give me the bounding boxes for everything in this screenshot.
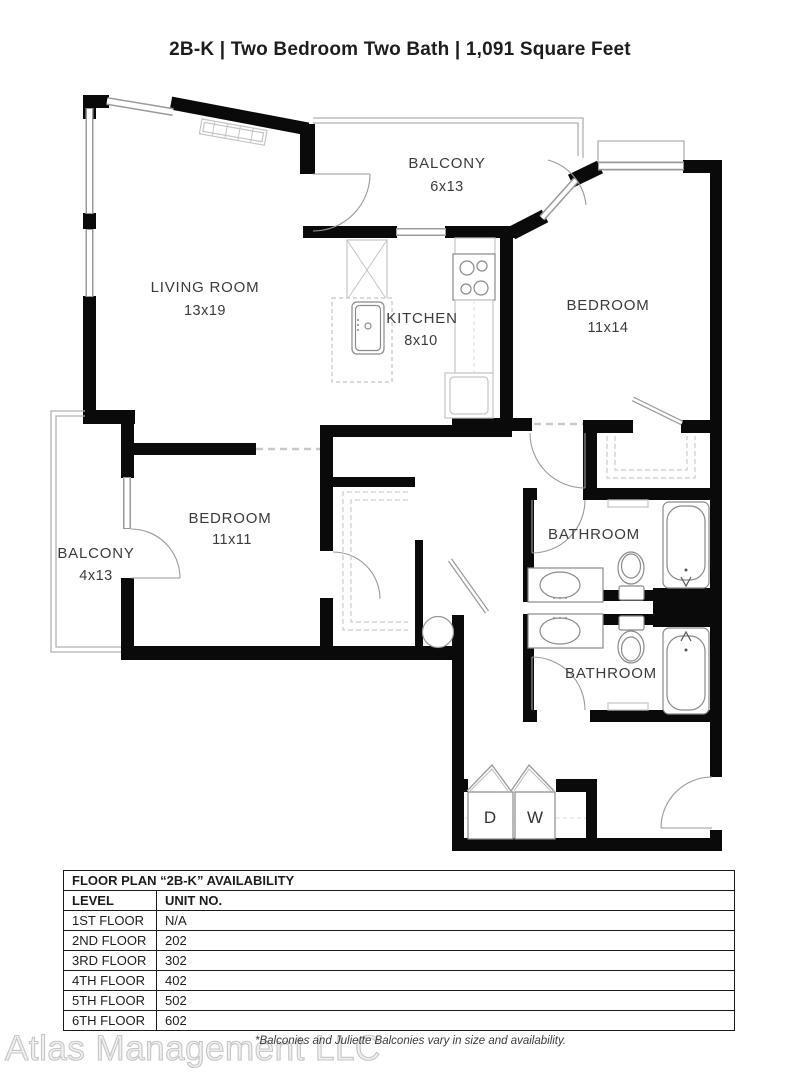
laundry-closet: D W xyxy=(465,765,586,839)
room-dims-balcony-top: 6x13 xyxy=(430,179,463,195)
balcony-door-leaf xyxy=(542,180,576,218)
stove xyxy=(453,254,495,300)
table-row: 5TH FLOOR 502 xyxy=(64,991,735,1011)
table-header-row: LEVEL UNIT NO. xyxy=(64,891,735,911)
room-dims-bedroom-1: 11x14 xyxy=(588,320,629,336)
room-dims-living-room: 13x19 xyxy=(184,303,226,319)
sink-vanity xyxy=(528,568,603,602)
room-dims-balcony-left: 4x13 xyxy=(79,568,112,584)
closet-door-leaf xyxy=(450,560,487,612)
table-title-row: FLOOR PLAN “2B-K” AVAILABILITY xyxy=(64,871,735,891)
entry-door-arc xyxy=(661,777,712,828)
table-row: 1ST FLOOR N/A xyxy=(64,911,735,931)
room-label-balcony-left: BALCONY xyxy=(57,545,134,562)
balcony-disclaimer-note: *Balconies and Juliette Balconies vary i… xyxy=(255,1035,566,1047)
unit-cell: 202 xyxy=(157,931,735,951)
room-label-kitchen: KITCHEN xyxy=(386,310,457,327)
unit-cell: 302 xyxy=(157,951,735,971)
washer-label: W xyxy=(527,808,543,827)
kitchen-fixtures xyxy=(332,238,495,418)
door-arc xyxy=(313,174,370,231)
table-row: 4TH FLOOR 402 xyxy=(64,971,735,991)
room-dims-kitchen: 8x10 xyxy=(404,333,437,349)
corner-cabinet xyxy=(347,240,387,300)
door-arc xyxy=(530,433,585,488)
room-label-bathroom-2: BATHROOM xyxy=(565,665,657,682)
room-label-bathroom-1: BATHROOM xyxy=(548,526,640,543)
table-title: FLOOR PLAN “2B-K” AVAILABILITY xyxy=(64,871,735,891)
toilet xyxy=(618,552,644,600)
level-cell: 5TH FLOOR xyxy=(64,991,157,1011)
room-dims-bedroom-2: 11x11 xyxy=(212,532,252,548)
dryer-label: D xyxy=(484,808,496,827)
unit-cell: 602 xyxy=(157,1011,735,1031)
room-label-living-room: LIVING ROOM xyxy=(151,279,260,296)
bathtub xyxy=(663,628,709,714)
closet-door-leaf xyxy=(633,399,682,423)
unit-cell: 502 xyxy=(157,991,735,1011)
room-label-bedroom-2: BEDROOM xyxy=(188,510,271,527)
level-cell: 1ST FLOOR xyxy=(64,911,157,931)
bathtub xyxy=(663,502,709,588)
level-cell: 4TH FLOOR xyxy=(64,971,157,991)
kitchen-sink xyxy=(352,302,384,354)
column-header-unit: UNIT NO. xyxy=(157,891,735,911)
level-cell: 3RD FLOOR xyxy=(64,951,157,971)
register xyxy=(608,703,648,710)
room-label-bedroom-1: BEDROOM xyxy=(566,297,649,314)
window xyxy=(107,101,173,112)
sink-vanity xyxy=(528,614,603,648)
table-row: 2ND FLOOR 202 xyxy=(64,931,735,951)
bifold-door xyxy=(514,769,551,791)
door-arc xyxy=(131,529,180,578)
table-row: 3RD FLOOR 302 xyxy=(64,951,735,971)
unit-cell: 402 xyxy=(157,971,735,991)
room-label-balcony-top: BALCONY xyxy=(408,155,485,172)
walls xyxy=(83,95,722,851)
door-arc xyxy=(333,552,380,599)
register xyxy=(608,500,648,507)
level-cell: 6TH FLOOR xyxy=(64,1011,157,1031)
counter xyxy=(455,300,493,373)
counter xyxy=(455,238,495,254)
toilet xyxy=(618,616,644,663)
floor-plan-page: 2B-K | Two Bedroom Two Bath | 1,091 Squa… xyxy=(0,0,800,1080)
unit-cell: N/A xyxy=(157,911,735,931)
refrigerator xyxy=(445,373,493,418)
table-row: 6TH FLOOR 602 xyxy=(64,1011,735,1031)
level-cell: 2ND FLOOR xyxy=(64,931,157,951)
column-header-level: LEVEL xyxy=(64,891,157,911)
availability-table: FLOOR PLAN “2B-K” AVAILABILITY LEVEL UNI… xyxy=(63,870,735,1031)
water-heater xyxy=(423,617,454,648)
